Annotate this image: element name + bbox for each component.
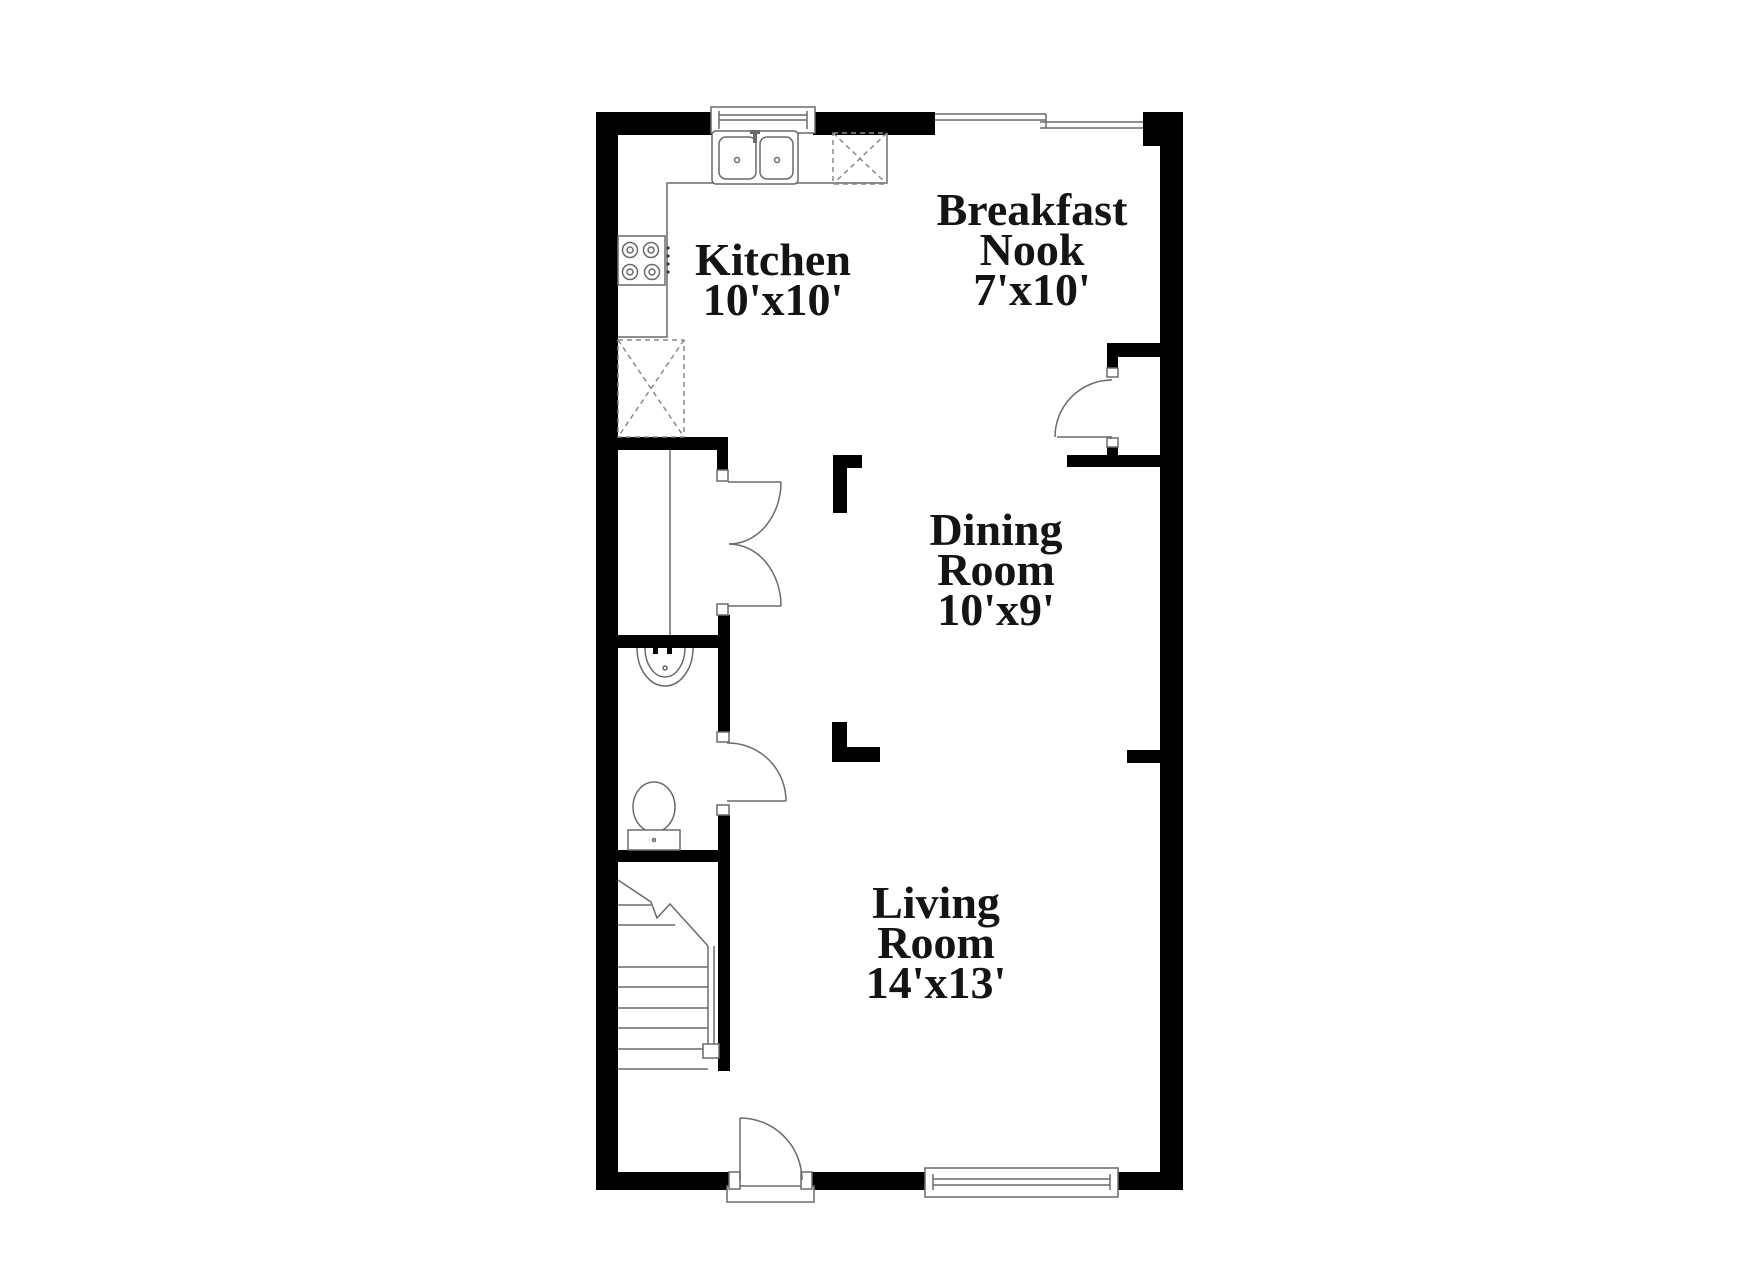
- powder-door-jamb-top: [717, 732, 729, 742]
- wall-stair-right: [718, 862, 730, 1071]
- refrigerator-dashed-x-icon: [618, 340, 684, 437]
- nook-door-jamb-bottom: [1107, 438, 1118, 447]
- toilet-icon: [628, 782, 680, 850]
- room-dimensions: 14'x13': [866, 963, 1007, 1003]
- cooktop-four-burner-icon: [618, 236, 670, 285]
- floor-plan-drawing: [0, 0, 1760, 1280]
- stair-newel-post: [703, 1044, 719, 1058]
- room-label-breakfast-nook: Breakfast Nook 7'x10': [937, 190, 1128, 310]
- wall-right: [1160, 112, 1183, 1190]
- wall-dining-corner-upper-horizontal: [833, 455, 862, 468]
- double-basin-kitchen-sink-icon: [712, 130, 798, 184]
- wall-powder-right-upper: [718, 615, 730, 732]
- wall-nook-door-post-top: [1107, 357, 1118, 368]
- entry-door: [727, 1118, 814, 1202]
- entry-door-jamb-right: [801, 1172, 812, 1189]
- nook-door-swing-icon: [1055, 380, 1112, 437]
- room-label-living-room: Living Room 14'x13': [866, 883, 1007, 1003]
- wall-bottom-middle-segment: [812, 1172, 927, 1190]
- room-label-kitchen: Kitchen 10'x10': [695, 240, 851, 320]
- closet-door-jamb-top: [717, 470, 728, 481]
- entry-door-swing-icon: [740, 1118, 802, 1180]
- stair-break-line: [618, 880, 708, 946]
- closet-double-doors: [670, 450, 781, 635]
- wall-nook-stub-upper: [1107, 343, 1160, 357]
- wall-powder-top: [618, 635, 730, 648]
- powder-door-swing-icon: [727, 743, 786, 801]
- wall-nook-door-post-bottom: [1107, 447, 1118, 455]
- room-dimensions: 10'x10': [695, 280, 851, 320]
- powder-room-sink-icon: [637, 644, 693, 686]
- entry-door-jamb-left: [729, 1172, 740, 1189]
- room-label-dining-room: Dining Room 10'x9': [930, 510, 1063, 630]
- wall-closet-top: [618, 437, 728, 450]
- dishwasher-dashed-x-icon: [833, 133, 887, 184]
- wall-closet-door-post-top: [717, 450, 728, 471]
- wall-top-left-segment: [596, 112, 713, 135]
- wall-nook-stub-lower: [1067, 455, 1160, 467]
- room-dimensions: 10'x9': [930, 590, 1063, 630]
- wall-bottom-left-segment: [596, 1172, 730, 1190]
- powder-door-jamb-bottom: [717, 805, 729, 815]
- window-bottom-living-icon: [925, 1168, 1118, 1197]
- closet-door-jamb-bottom: [717, 604, 728, 615]
- wall-top-middle-segment: [813, 112, 935, 135]
- nook-closet-door: [1055, 368, 1118, 447]
- wall-bottom-right-segment: [1117, 1172, 1183, 1190]
- wall-top-right-corner: [1143, 112, 1183, 146]
- floor-plan-canvas: Kitchen 10'x10' Breakfast Nook 7'x10' Di…: [0, 0, 1760, 1280]
- wall-living-stub-right: [1127, 750, 1160, 763]
- wall-dining-corner-lower-horizontal: [832, 747, 880, 762]
- wall-left: [596, 112, 618, 1190]
- room-dimensions: 7'x10': [937, 270, 1128, 310]
- powder-room: [628, 644, 786, 850]
- staircase-with-break-line-icon: [618, 880, 719, 1069]
- closet-door-upper-swing-icon: [729, 482, 781, 544]
- closet-door-lower-swing-icon: [729, 544, 781, 606]
- wall-stair-top: [618, 850, 730, 862]
- window-top-kitchen-icon: [711, 107, 815, 133]
- window-top-nook-icon: [935, 108, 1143, 135]
- nook-door-jamb-top: [1107, 368, 1118, 377]
